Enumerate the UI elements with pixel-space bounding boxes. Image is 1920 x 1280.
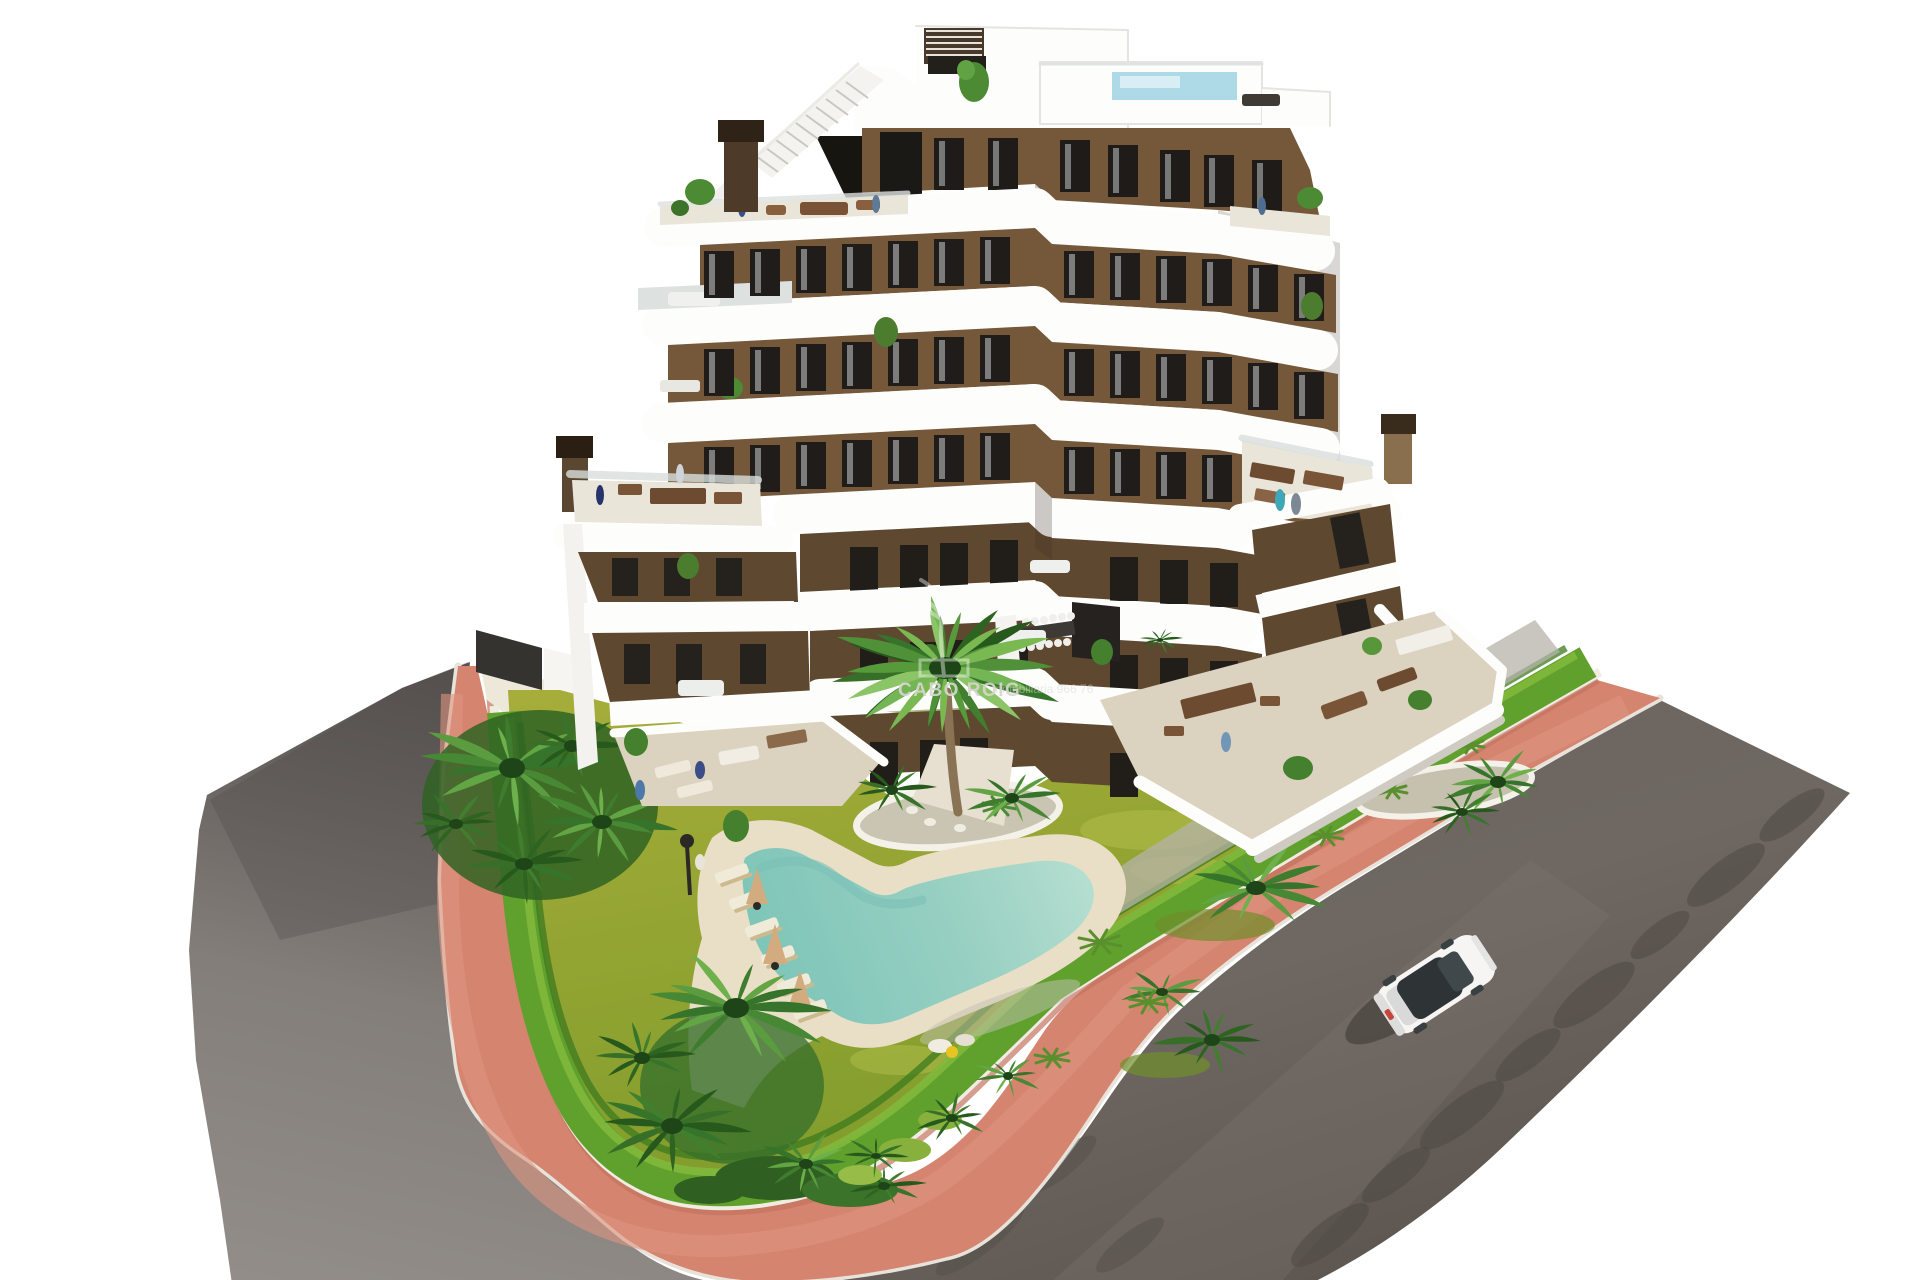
svg-text:Inmobiliaria 966 76: Inmobiliaria 966 76	[992, 682, 1094, 696]
